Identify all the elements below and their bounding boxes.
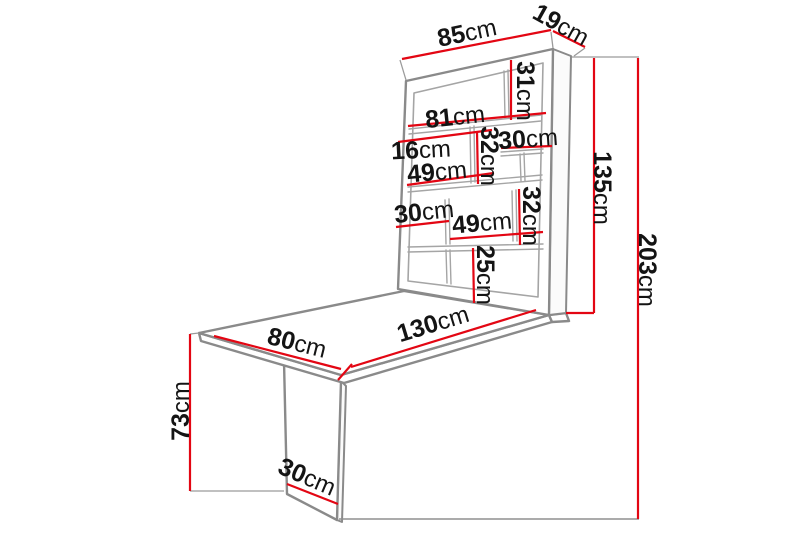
- dim-bottom-cubby-label: 25cm: [471, 245, 499, 305]
- dimension-diagram: 85cm 19cm 31cm 81cm 16cm 32cm 30cm 49cm …: [0, 0, 800, 533]
- divider-top-edge: [508, 70, 509, 118]
- tick-width-left: [400, 60, 406, 80]
- dim-middle-cubby-label: 49cm: [451, 206, 513, 239]
- divider-top: [504, 71, 505, 118]
- fold-out-table: [199, 291, 569, 522]
- dim-unit-width-label: 85cm: [435, 13, 499, 53]
- divider-upper-edge: [474, 126, 475, 182]
- divider-bottom: [446, 250, 447, 283]
- divider-bottom-edge: [450, 250, 451, 284]
- divider-sub: [520, 154, 521, 181]
- tick-table-height-top: [190, 333, 199, 334]
- divider-sub-edge: [524, 153, 525, 181]
- dim-upper-right-cubby-label: 30cm: [497, 123, 559, 155]
- dim-unit-height-label: 135cm: [588, 151, 616, 225]
- dim-top-cubby-label: 31cm: [511, 61, 539, 121]
- dim-unit-depth-label: 19cm: [528, 0, 594, 52]
- dim-upper-left-cubby-label: 49cm: [406, 155, 468, 188]
- dim-total-height-label: 203cm: [633, 233, 661, 307]
- leg-front-face: [284, 361, 341, 520]
- divider-upper: [470, 127, 471, 183]
- dim-middle-divider-label: 32cm: [517, 186, 545, 246]
- table-leg: [284, 361, 346, 522]
- dim-table-height-label: 73cm: [167, 381, 195, 441]
- diagram-svg: 85cm 19cm 31cm 81cm 16cm 32cm 30cm 49cm …: [0, 0, 800, 533]
